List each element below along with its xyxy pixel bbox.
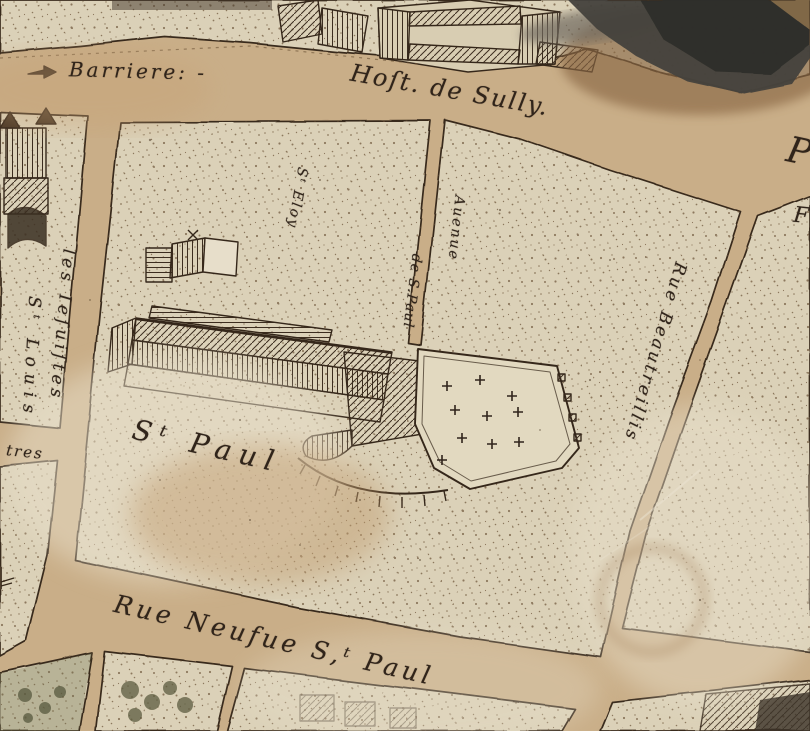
map-engraving (0, 0, 810, 731)
label-edge-letter-f: F (792, 203, 810, 229)
label-barriere: Barriere: - (69, 57, 208, 85)
label-prestres-partial: tres (5, 441, 44, 463)
map-canvas: Barriere: - Hoſt. de Sully. les Ieſuiſte… (0, 0, 810, 731)
cemetery-enclosure-drawing (415, 349, 581, 489)
